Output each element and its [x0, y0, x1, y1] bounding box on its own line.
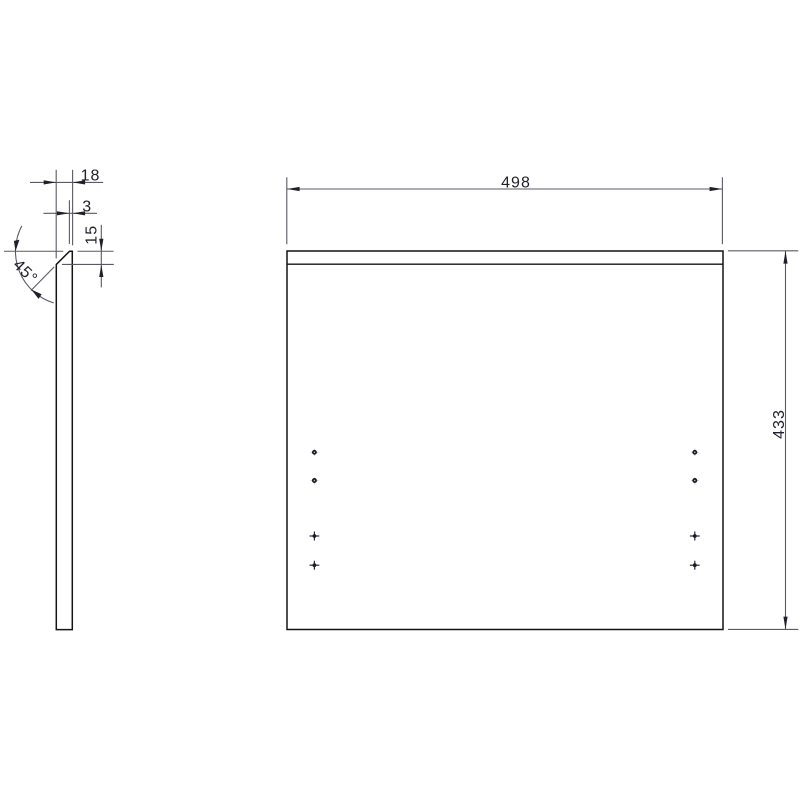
svg-text:3: 3	[82, 198, 92, 215]
svg-text:498: 498	[501, 174, 531, 191]
svg-text:433: 433	[771, 409, 788, 439]
svg-text:15: 15	[84, 225, 101, 245]
svg-text:18: 18	[81, 167, 101, 184]
